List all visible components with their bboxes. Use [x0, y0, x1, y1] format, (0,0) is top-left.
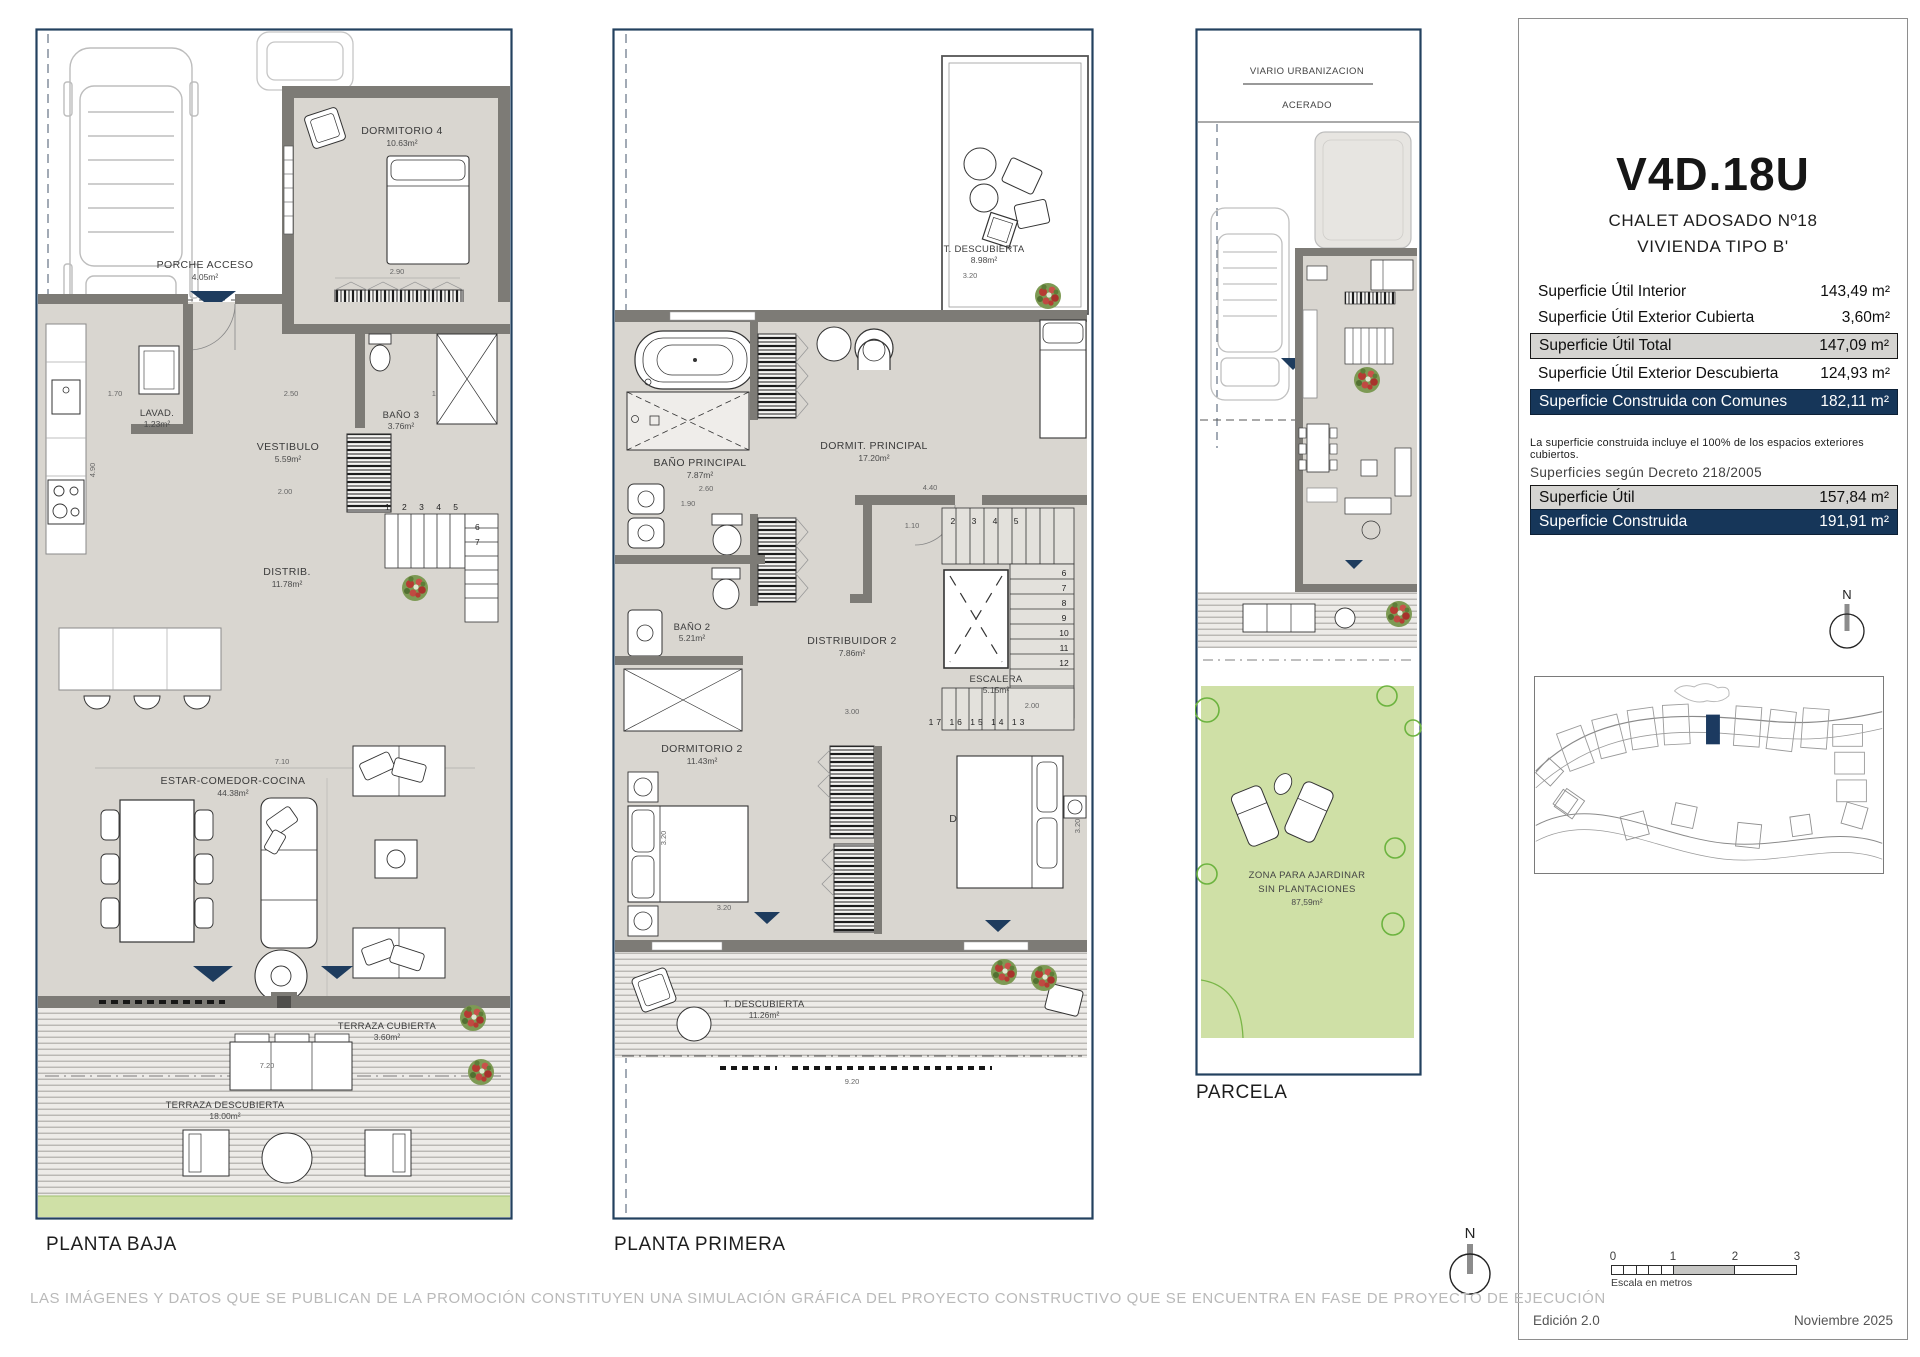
stair-number-7: 7	[475, 537, 480, 547]
pouf-icon	[817, 327, 851, 361]
stair-number: 8	[1062, 598, 1067, 608]
flower-icon	[1035, 283, 1061, 309]
stair-number: 6	[1062, 568, 1067, 578]
stair-number: 7	[1062, 583, 1067, 593]
dim-h320: 3.20	[717, 903, 732, 912]
wall	[982, 495, 1087, 505]
scale-tick: 0	[1610, 1251, 1616, 1263]
scale-tick: 2	[1732, 1251, 1738, 1263]
room-area-distribuidor2: 7.86m²	[839, 648, 866, 658]
dim-490: 4.90	[88, 463, 97, 478]
shower-icon	[627, 392, 749, 450]
zone-label-viario: VIARIO URBANIZACION	[1250, 66, 1364, 77]
dining-table-icon	[101, 800, 213, 942]
room-label-dormit-ppal: DORMIT. PRINCIPAL	[820, 440, 928, 452]
stair-number-6: 6	[475, 522, 480, 532]
room-area-porche: 4.05m²	[192, 272, 219, 282]
unit-code: V4D.18U	[1519, 147, 1907, 201]
plant-icon	[402, 575, 428, 601]
deck-table-icon	[262, 1133, 312, 1183]
stair-void	[944, 570, 1008, 668]
garden-label-line1: ZONA PARA AJARDINAR	[1249, 870, 1366, 881]
stair-numbers-bottom: 17 16 15 14 13	[929, 717, 1028, 727]
room-area-terraza-inf: 11.26m²	[749, 1010, 780, 1020]
wall	[38, 294, 188, 304]
surface-note: La superficie construida incluye el 100%…	[1530, 437, 1898, 461]
wall	[1295, 248, 1303, 592]
surface-label: Superficie Útil Total	[1539, 337, 1671, 355]
wall	[1295, 584, 1417, 592]
wall	[235, 294, 282, 304]
room-label-distrib: DISTRIB.	[263, 566, 311, 578]
site-map	[1534, 676, 1884, 874]
surface-label: Superficie Construida	[1539, 513, 1687, 531]
room-label-dorm4: DORMITORIO 4	[361, 125, 443, 137]
surface-row-constructed: Superficie Construida con Comunes 182,11…	[1530, 389, 1898, 415]
surface-value: 182,11 m²	[1820, 393, 1889, 411]
decreto-heading: Superficies según Decreto 218/2005	[1530, 465, 1762, 480]
surface-label: Superficie Útil Interior	[1538, 283, 1686, 301]
surface-row: Superficie Útil Interior 143,49 m²	[1530, 281, 1898, 303]
door-post	[277, 996, 291, 1008]
flower-icon	[468, 1059, 494, 1085]
room-area-terraza-cubierta: 3.60m²	[374, 1032, 401, 1042]
garden-area-value: 87,59m²	[1291, 897, 1322, 907]
bed-icon	[1040, 320, 1086, 438]
surface-label: Superficie Construida con Comunes	[1539, 393, 1787, 411]
washer-icon	[139, 346, 179, 394]
room-label-bano2: BAÑO 2	[674, 622, 711, 633]
window	[652, 942, 722, 950]
surface-row: Superficie Útil Exterior Cubierta 3,60m²	[1530, 307, 1898, 329]
dim-200: 2.00	[278, 487, 293, 496]
wardrobe-icon	[347, 434, 391, 512]
room-area-bano3: 3.76m²	[388, 421, 415, 431]
surface-value: 124,93 m²	[1820, 365, 1890, 383]
dim-260: 2.60	[699, 484, 714, 493]
info-panel: V4D.18U CHALET ADOSADO Nº18 VIVIENDA TIP…	[1518, 18, 1908, 1340]
toilet-icon	[712, 514, 742, 555]
flower-icon	[460, 1005, 486, 1031]
compass-icon: N	[1823, 585, 1871, 659]
surface-table: Superficie Útil Interior 143,49 m² Super…	[1530, 277, 1898, 415]
wall	[1295, 248, 1417, 256]
caption-planta-baja: PLANTA BAJA	[46, 1234, 177, 1256]
surface-value: 157,84 m²	[1819, 489, 1889, 507]
surface-value: 3,60m²	[1842, 309, 1890, 327]
compass-needle	[1845, 604, 1850, 631]
garden-label-line2: SIN PLANTACIONES	[1258, 884, 1356, 895]
dim-720: 7.20	[260, 1061, 275, 1070]
disclaimer-text: LAS IMÁGENES Y DATOS QUE SE PUBLICAN DE …	[30, 1290, 1210, 1307]
wall	[282, 86, 510, 98]
toilet-icon	[369, 334, 391, 371]
wall	[498, 86, 510, 332]
unit-subtitle-1: CHALET ADOSADO Nº18	[1519, 211, 1907, 231]
compass-needle	[1467, 1244, 1473, 1274]
mini-house-floor	[1303, 256, 1417, 584]
edition-label: Edición 2.0	[1533, 1313, 1600, 1328]
wall	[615, 656, 743, 665]
room-label-bano3: BAÑO 3	[383, 410, 420, 421]
room-area-estar: 44.38m²	[217, 788, 248, 798]
decreto-table: Superficie Útil 157,84 m² Superficie Con…	[1530, 485, 1898, 535]
toilet-icon	[712, 568, 740, 609]
room-label-escalera: ESCALERA	[969, 674, 1022, 685]
scale-tick: 3	[1794, 1251, 1800, 1263]
room-label-terraza-cubierta: TERRAZA CUBIERTA	[338, 1021, 437, 1032]
stair-numbers-top: 1 2 3 4 5	[385, 502, 463, 512]
wall	[282, 324, 510, 334]
armchair-icon	[353, 746, 445, 796]
pergola-roof	[1315, 132, 1411, 248]
scale-tick: 1	[1670, 1251, 1676, 1263]
stair-number: 11	[1060, 643, 1069, 653]
nightstand-icon	[628, 772, 658, 802]
stair-number: 10	[1059, 628, 1069, 638]
wall	[850, 594, 872, 603]
garden-area	[1201, 686, 1414, 1038]
dim-290: 2.90	[390, 267, 405, 276]
parcela-plan: VIARIO URBANIZACION ACERADO	[1195, 28, 1422, 1076]
room-area-dorm4: 10.63m²	[386, 138, 417, 148]
stair-numbers-top: 2 3 4 5	[951, 516, 1026, 526]
sofa-icon	[261, 798, 317, 948]
window	[670, 312, 755, 320]
room-area-lavad: 1.23m²	[144, 419, 171, 429]
stair-number: 9	[1062, 613, 1067, 623]
radiator-icon	[284, 146, 293, 234]
flower-icon	[1354, 367, 1380, 393]
room-label-estar: ESTAR-COMEDOR-COCINA	[161, 775, 306, 787]
room-label-lavad: LAVAD.	[140, 408, 174, 419]
room-area-dormit-ppal: 17.20m²	[858, 453, 889, 463]
surface-row: Superficie Útil Exterior Descubierta 124…	[1530, 363, 1898, 385]
room-area-escalera: 5.15m²	[983, 685, 1010, 695]
wall	[863, 505, 872, 603]
zone-label-acerado: ACERADO	[1282, 100, 1332, 111]
room-label-terraza-inf: T. DESCUBIERTA	[724, 999, 805, 1010]
stove-icon	[48, 480, 84, 524]
surface-label: Superficie Útil Exterior Cubierta	[1538, 309, 1754, 327]
surface-value: 191,91 m²	[1819, 513, 1889, 531]
dim-710: 7.10	[275, 757, 290, 766]
dim-t320: 3.20	[963, 271, 978, 280]
room-label-terraza-sup: T. DESCUBIERTA	[944, 244, 1025, 255]
date-label: Noviembre 2025	[1794, 1313, 1893, 1328]
bed-icon	[957, 756, 1063, 888]
bed-icon	[628, 806, 748, 902]
compass-n-label: N	[1842, 587, 1851, 602]
room-area-bano2: 5.21m²	[679, 633, 706, 643]
deck-armchair-icon	[183, 1130, 229, 1176]
surface-value: 143,49 m²	[1820, 283, 1890, 301]
stair-number: 12	[1059, 658, 1069, 668]
deck-armchair-icon	[365, 1130, 411, 1176]
site-map-highlight	[1706, 715, 1720, 745]
room-area-dorm2: 11.43m²	[687, 756, 718, 766]
lounge-chair-icon	[855, 329, 893, 370]
garden-strip	[38, 1196, 510, 1217]
sink-icon	[628, 610, 662, 656]
scale-segments	[1611, 1265, 1797, 1275]
dim-200: 2.00	[1025, 701, 1040, 710]
scale-caption: Escala en metros	[1611, 1277, 1801, 1289]
room-label-dorm2: DORMITORIO 2	[661, 743, 743, 755]
nightstand-icon	[1064, 796, 1086, 818]
shower-icon	[437, 334, 497, 424]
decreto-row: Superficie Útil 157,84 m²	[1530, 485, 1898, 511]
wall	[183, 304, 193, 432]
fitted-wardrobe-icon	[624, 669, 742, 731]
wall	[855, 495, 955, 505]
scale-ticks: 0 1 2 3	[1611, 1251, 1801, 1265]
deck-table-icon	[1335, 608, 1355, 628]
room-label-vestibulo: VESTIBULO	[257, 441, 320, 453]
dim-250: 2.50	[284, 389, 299, 398]
side-table-icon	[375, 840, 417, 878]
room-area-terraza-sup: 8.98m²	[971, 255, 998, 265]
dim-190: 1.90	[681, 499, 696, 508]
dim-110: 1.10	[905, 521, 920, 530]
surface-row-total: Superficie Útil Total 147,09 m²	[1530, 333, 1898, 359]
caption-parcela: PARCELA	[1196, 1082, 1288, 1104]
bathtub-icon	[635, 331, 755, 389]
outdoor-table-icon	[230, 1034, 352, 1090]
dim-300: 3.00	[845, 707, 860, 716]
dim-440: 4.40	[923, 483, 938, 492]
room-area-terraza-descubierta: 18.00m²	[209, 1111, 240, 1121]
flower-icon	[1031, 965, 1057, 991]
surface-value: 147,09 m²	[1819, 337, 1889, 355]
surface-label: Superficie Útil Exterior Descubierta	[1538, 365, 1778, 383]
flower-icon	[1386, 601, 1412, 627]
planta-primera-plan: T. DESCUBIERTA 8.98m² 3.20 BAÑO PRINCIPA…	[612, 28, 1094, 1220]
room-label-porche: PORCHE ACCESO	[157, 259, 254, 271]
room-label-terraza-descubierta: TERRAZA DESCUBIERTA	[166, 1100, 285, 1111]
wall	[874, 746, 882, 934]
room-label-distribuidor2: DISTRIBUIDOR 2	[807, 635, 897, 647]
nightstand-icon	[628, 906, 658, 936]
planta-baja-plan: PORCHE ACCESO 4.05m² DORMITORIO 4 10.63m…	[35, 28, 513, 1220]
decreto-row: Superficie Construida 191,91 m²	[1530, 509, 1898, 535]
room-area-distrib: 11.78m²	[272, 579, 303, 589]
compass-n-label: N	[1465, 1225, 1476, 1242]
room-label-bano-ppal: BAÑO PRINCIPAL	[654, 456, 747, 469]
room-area-bano-ppal: 7.87m²	[687, 470, 714, 480]
room-area-vestibulo: 5.59m²	[275, 454, 302, 464]
dim-170l: 1.70	[108, 389, 123, 398]
wall	[615, 555, 765, 564]
deck-table-icon	[677, 1007, 711, 1041]
bench-icon	[1243, 604, 1315, 632]
flower-icon	[991, 959, 1017, 985]
scale-bar: 0 1 2 3 Escala en metros	[1611, 1251, 1801, 1289]
armchair-icon	[353, 928, 445, 978]
unit-subtitle-2: VIVIENDA TIPO B'	[1519, 237, 1907, 257]
dim-v320a: 3.20	[659, 831, 668, 846]
floorplan-sheet: PORCHE ACCESO 4.05m² DORMITORIO 4 10.63m…	[0, 0, 1920, 1357]
surface-label: Superficie Útil	[1539, 489, 1635, 507]
wall	[750, 322, 758, 420]
caption-planta-primera: PLANTA PRIMERA	[614, 1234, 786, 1256]
window	[964, 942, 1028, 950]
bed-icon	[387, 156, 469, 264]
dim-v320b: 3.20	[1073, 819, 1082, 834]
dim-920: 9.20	[845, 1077, 860, 1086]
wall	[355, 324, 365, 428]
